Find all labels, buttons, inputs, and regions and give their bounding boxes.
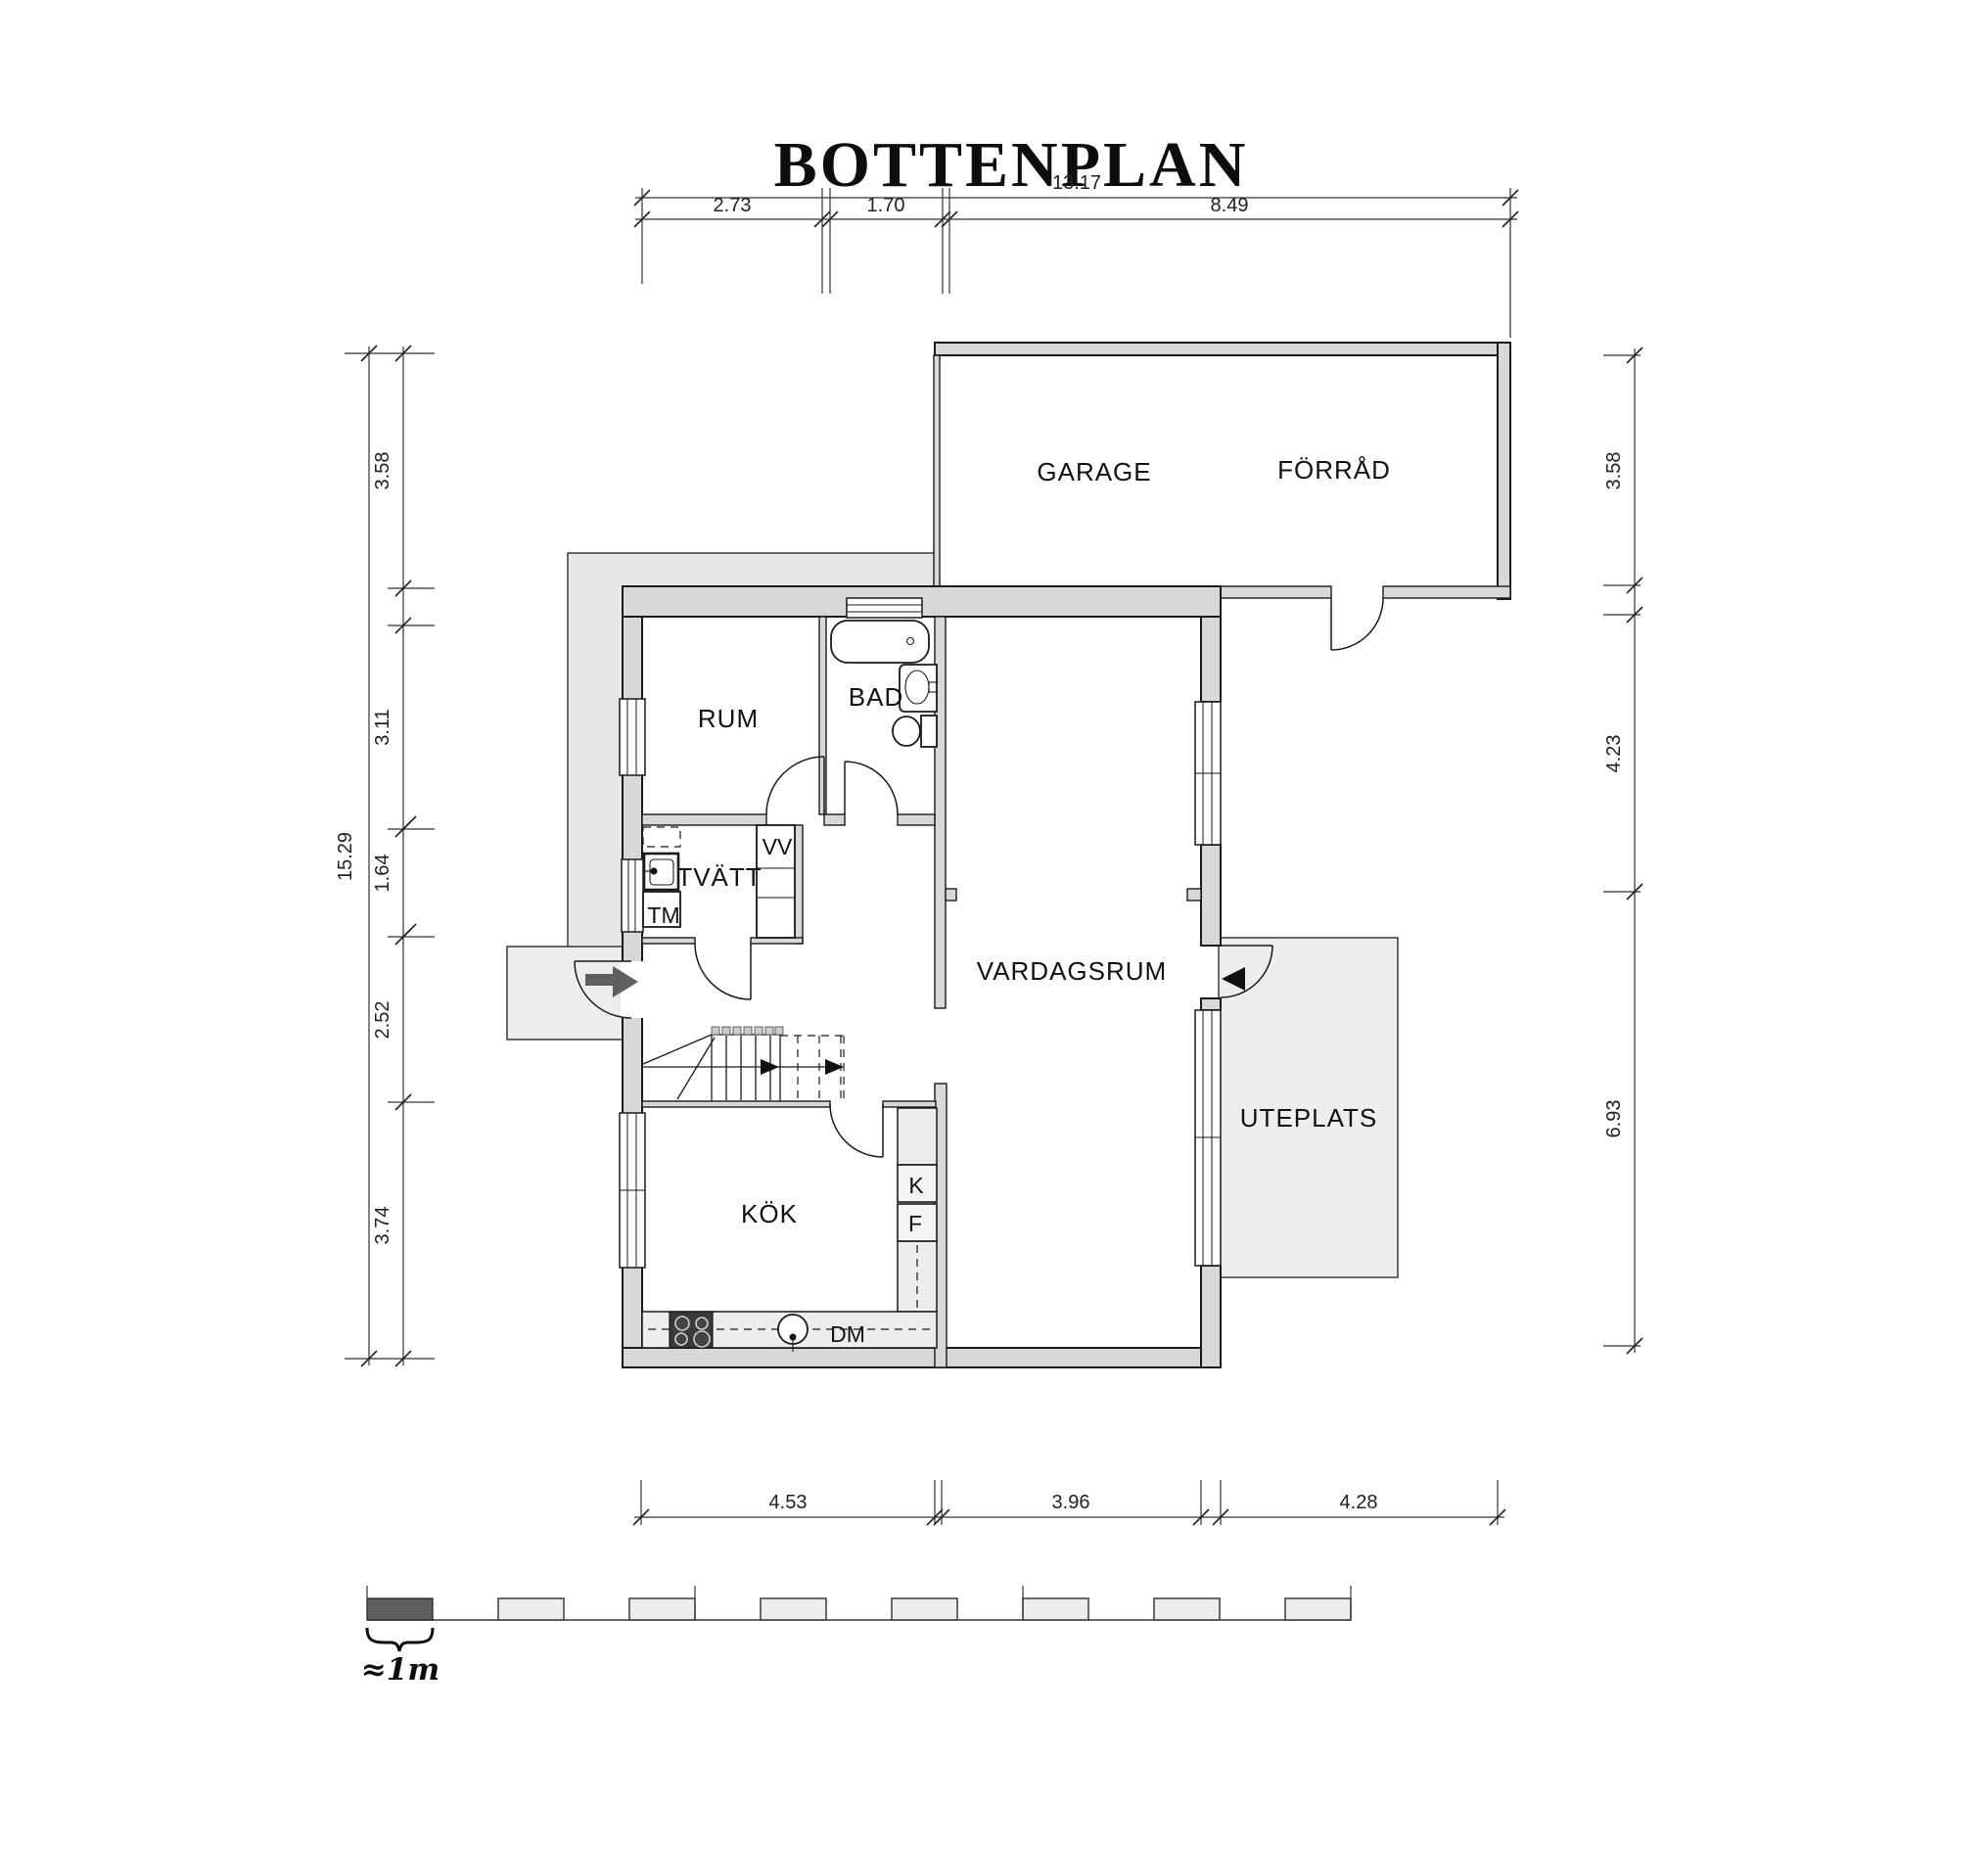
tvatt-south-wall-2 (751, 938, 803, 944)
dim-top-2: 1.70 (867, 195, 905, 216)
hall-east-wall-stub (946, 889, 956, 901)
label-f: F (908, 1211, 922, 1236)
bottenplan-drawing: BOTTENPLAN (0, 0, 1988, 1850)
wing-top-band (568, 553, 935, 586)
dim-right-1: 3.58 (1603, 452, 1625, 490)
vardagsrum-window-upper (1195, 702, 1221, 845)
bad-window (847, 598, 922, 618)
label-rum: RUM (698, 704, 759, 733)
dim-left-3: 1.64 (372, 855, 393, 893)
stair-arrow-2-icon (825, 1059, 844, 1075)
label-vardagsrum: VARDAGSRUM (977, 956, 1167, 986)
garage-walls (934, 343, 1510, 599)
tvatt-door (695, 944, 751, 999)
dim-bottom: 4.53 3.96 4.28 (633, 1480, 1505, 1525)
label-forrad: FÖRRÅD (1277, 455, 1391, 485)
rum-bad-divider (819, 617, 826, 814)
hall-north-wall-3 (898, 814, 935, 825)
dim-left-2: 3.11 (372, 709, 393, 745)
label-vv: VV (763, 834, 793, 859)
wing-left-band (568, 553, 623, 947)
toilet (893, 716, 937, 747)
dim-right-2: 4.23 (1603, 735, 1625, 773)
bathtub (831, 621, 929, 663)
dim-right: 3.58 4.23 6.93 (1603, 347, 1642, 1354)
label-tvatt: TVÄTT (676, 862, 762, 892)
dim-left-1: 3.58 (372, 452, 393, 490)
house-wall-east-1 (1201, 617, 1221, 702)
rum-door (766, 757, 824, 814)
garage-wall-north (935, 343, 1510, 355)
house-wall-east-2 (1201, 845, 1221, 946)
kok-window (620, 1113, 645, 1268)
label-garage: GARAGE (1037, 457, 1151, 486)
garage-wall-south-right (1383, 586, 1510, 598)
house-wall-east-4 (1201, 1266, 1221, 1367)
kitchen-north-wall (642, 1101, 830, 1107)
counter-right-upper (898, 1108, 937, 1165)
rum-window (620, 699, 645, 775)
dim-top-1: 2.73 (714, 195, 752, 216)
dim-left-total: 15.29 (335, 832, 356, 881)
tvatt-window (622, 859, 643, 932)
staircase (643, 1027, 844, 1101)
dim-top-total: 13.17 (1052, 172, 1101, 194)
tvatt-sink (644, 854, 678, 890)
tvatt-east-wall (795, 825, 803, 944)
garage-wall-west (934, 355, 940, 587)
label-dm: DM (830, 1321, 865, 1347)
scale-bar-dark-box (367, 1598, 433, 1620)
stove (670, 1312, 713, 1348)
stair-posts (712, 1027, 783, 1035)
house-wall-east-3 (1201, 998, 1221, 1010)
floor-plan-page: BOTTENPLAN (0, 0, 1988, 1850)
dim-right-3: 6.93 (1603, 1100, 1625, 1138)
dim-left: 15.29 3.58 3.11 1.64 2.52 3.74 (335, 346, 435, 1366)
vardagsrum-window-lower (1195, 1010, 1221, 1266)
tvatt-south-wall-1 (642, 938, 695, 944)
garage-wall-east (1498, 343, 1510, 599)
east-wall-stub (1187, 889, 1201, 901)
dim-bottom-3: 4.28 (1340, 1492, 1378, 1513)
dim-left-5: 3.74 (372, 1207, 393, 1245)
hall-north-wall-1 (642, 814, 766, 825)
dim-left-4: 2.52 (372, 1001, 393, 1040)
label-tm: TM (647, 902, 679, 928)
label-kok: KÖK (741, 1199, 798, 1228)
dim-bottom-1: 4.53 (769, 1492, 808, 1513)
kitchen-door (830, 1104, 883, 1157)
label-k: K (908, 1173, 924, 1198)
label-uteplats: UTEPLATS (1240, 1103, 1377, 1133)
bad-sink (900, 665, 937, 712)
scale-label: ≈1m (361, 1652, 439, 1688)
garage-wall-south-left (1221, 586, 1331, 598)
house-wall-south (623, 1348, 1221, 1367)
dim-top-3: 8.49 (1211, 195, 1249, 216)
kitchen-north-wall-jamb (883, 1101, 936, 1107)
bad-door (845, 762, 898, 814)
hall-north-wall-2 (824, 814, 845, 825)
page-title: BOTTENPLAN (774, 129, 1249, 201)
scale-bar: ≈1m (361, 1586, 1351, 1688)
forrad-door (1331, 598, 1383, 650)
label-bad: BAD (849, 682, 903, 712)
dim-bottom-2: 3.96 (1052, 1492, 1090, 1513)
scale-brace-icon (367, 1628, 433, 1651)
tvatt-closet-dashed (643, 827, 680, 847)
